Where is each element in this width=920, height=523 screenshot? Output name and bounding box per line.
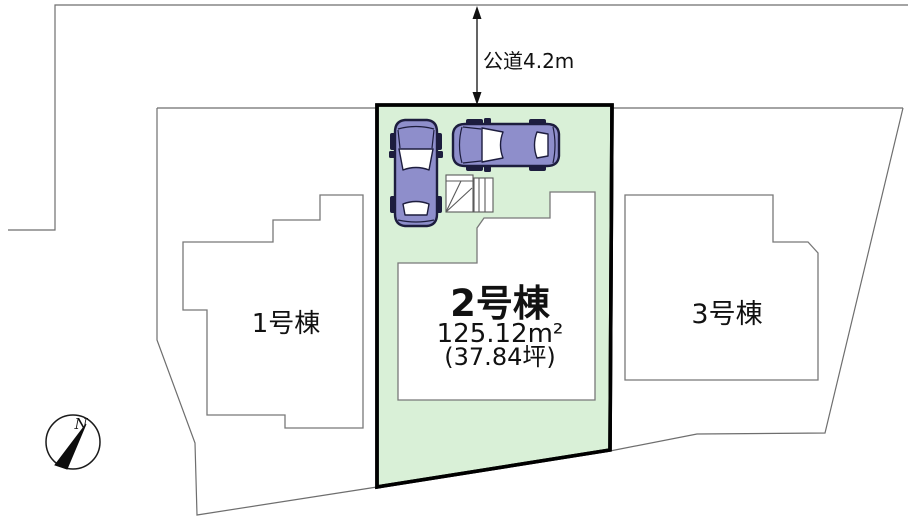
plot3-label: 3号棟 <box>691 299 762 330</box>
compass-north-label: N <box>73 415 88 433</box>
car-icon-horizontal <box>453 118 559 172</box>
building3-footprint <box>625 195 818 380</box>
dimension-arrowhead-down-icon <box>473 92 482 105</box>
car-icon-vertical <box>389 120 443 226</box>
dimension-arrowhead-up-icon <box>473 6 482 19</box>
plot1-label: 1号棟 <box>252 309 321 339</box>
road-width-label: 公道4.2m <box>483 49 574 73</box>
plot2-area-tsubo: (37.84坪) <box>444 343 555 371</box>
compass: N <box>46 415 100 469</box>
site-plan-canvas: 公道4.2m 1号棟 2号棟 125.12m² (37.84坪) 3号棟 N <box>0 0 920 523</box>
stairs-icon <box>446 175 493 212</box>
road-width-dimension: 公道4.2m <box>473 6 575 105</box>
site-plan-drawing: 公道4.2m 1号棟 2号棟 125.12m² (37.84坪) 3号棟 N <box>0 0 920 523</box>
